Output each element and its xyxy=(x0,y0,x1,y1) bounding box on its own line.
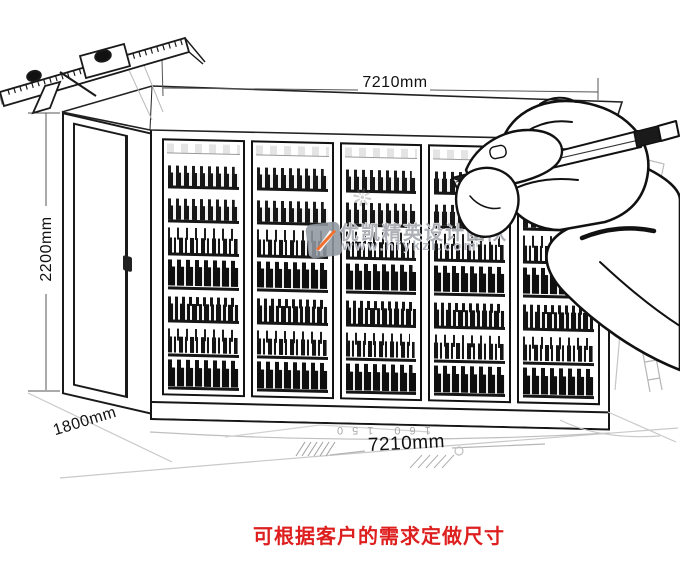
customization-note: 可根据客户的需求定做尺寸 xyxy=(253,520,505,549)
floor-sketch-numbers: 160 150 xyxy=(328,424,431,436)
dimension-top-width: 7210mm xyxy=(360,74,430,92)
floor-number-right: 150 xyxy=(328,424,373,436)
floor-number-left: 160 xyxy=(385,424,430,436)
dimension-height: 2200mm xyxy=(38,214,56,284)
product-drawing-canvas: 优凯精英设计团队 www.hfykzl.com ❊ ❊ xyxy=(0,0,680,578)
thumb xyxy=(456,168,518,237)
hand-with-pencil-illustration xyxy=(0,0,680,578)
